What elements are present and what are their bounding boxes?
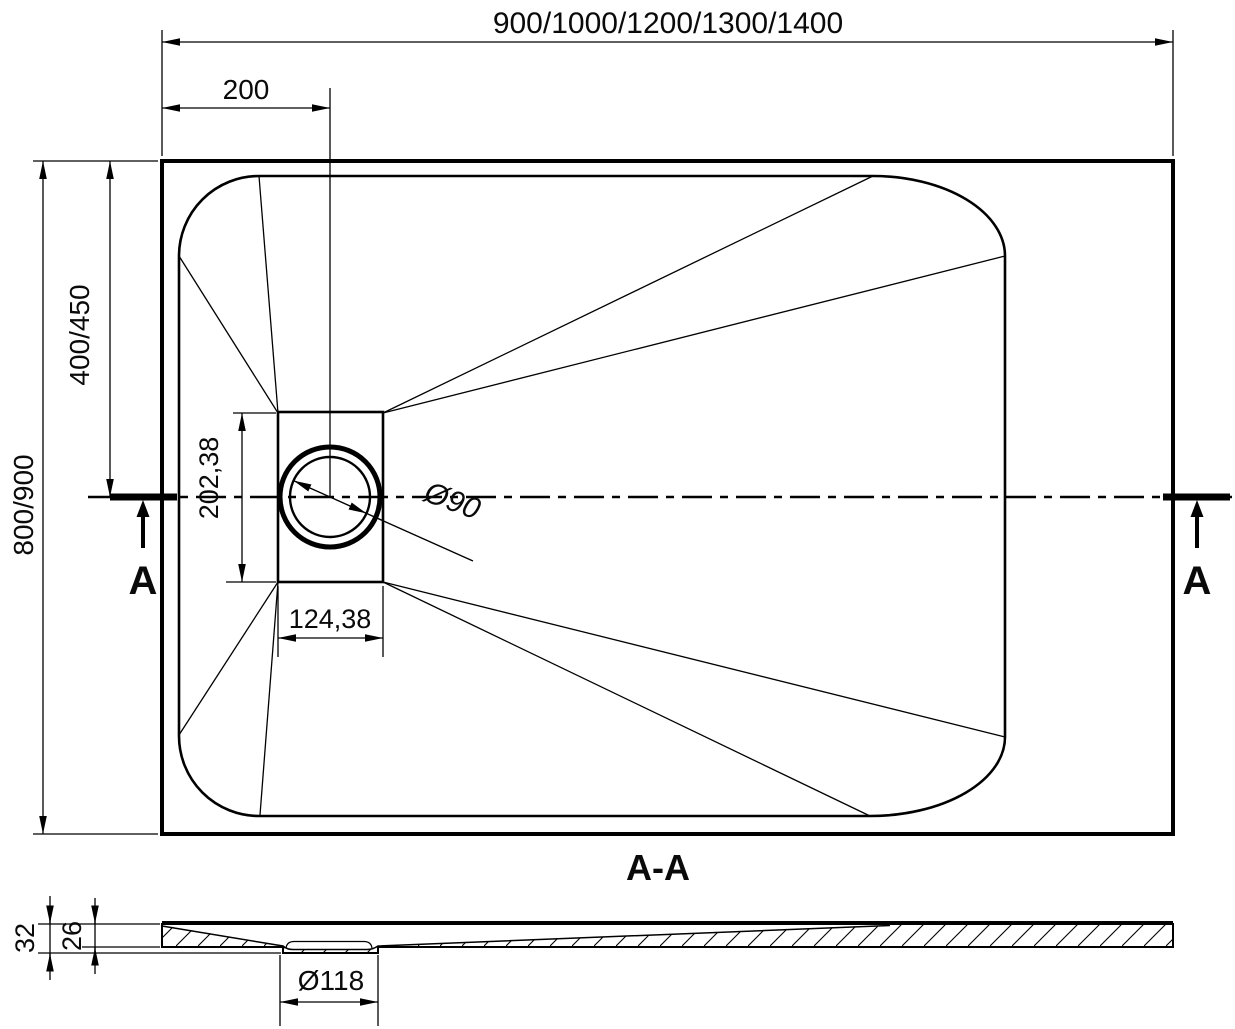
shower-tray-drawing: 900/1000/1200/1300/1400 200 800/900 400/…: [0, 0, 1235, 1029]
overall-width-label: 900/1000/1200/1300/1400: [493, 7, 843, 40]
drain-recess-plate: [286, 942, 372, 949]
base-thickness-label: 26: [57, 921, 87, 951]
section-arrow-left: [137, 500, 150, 548]
plate-width-label: 124,38: [289, 604, 372, 634]
arrow-head: [137, 500, 150, 517]
drain-offset-y-label: 400/450: [64, 284, 95, 385]
depth-label: 800/900: [8, 454, 39, 555]
section-view: A-A 32 26: [10, 847, 1173, 1026]
section-title: A-A: [626, 847, 690, 888]
arrow-head: [1191, 500, 1204, 517]
drain-offset-x-label: 200: [223, 74, 270, 105]
top-view: 900/1000/1200/1300/1400 200 800/900 400/…: [8, 7, 1232, 834]
technical-drawing-sheet: 900/1000/1200/1300/1400 200 800/900 400/…: [0, 0, 1235, 1029]
plate-height-label: 202,38: [194, 437, 224, 520]
section-marker-right-label: A: [1183, 559, 1212, 603]
section-arrow-right: [1191, 500, 1204, 548]
drain-hole-diameter-label: Ø118: [298, 965, 364, 996]
section-dimensions: [38, 896, 378, 1026]
section-marker-left-label: A: [129, 559, 158, 603]
total-height-label: 32: [10, 923, 40, 953]
